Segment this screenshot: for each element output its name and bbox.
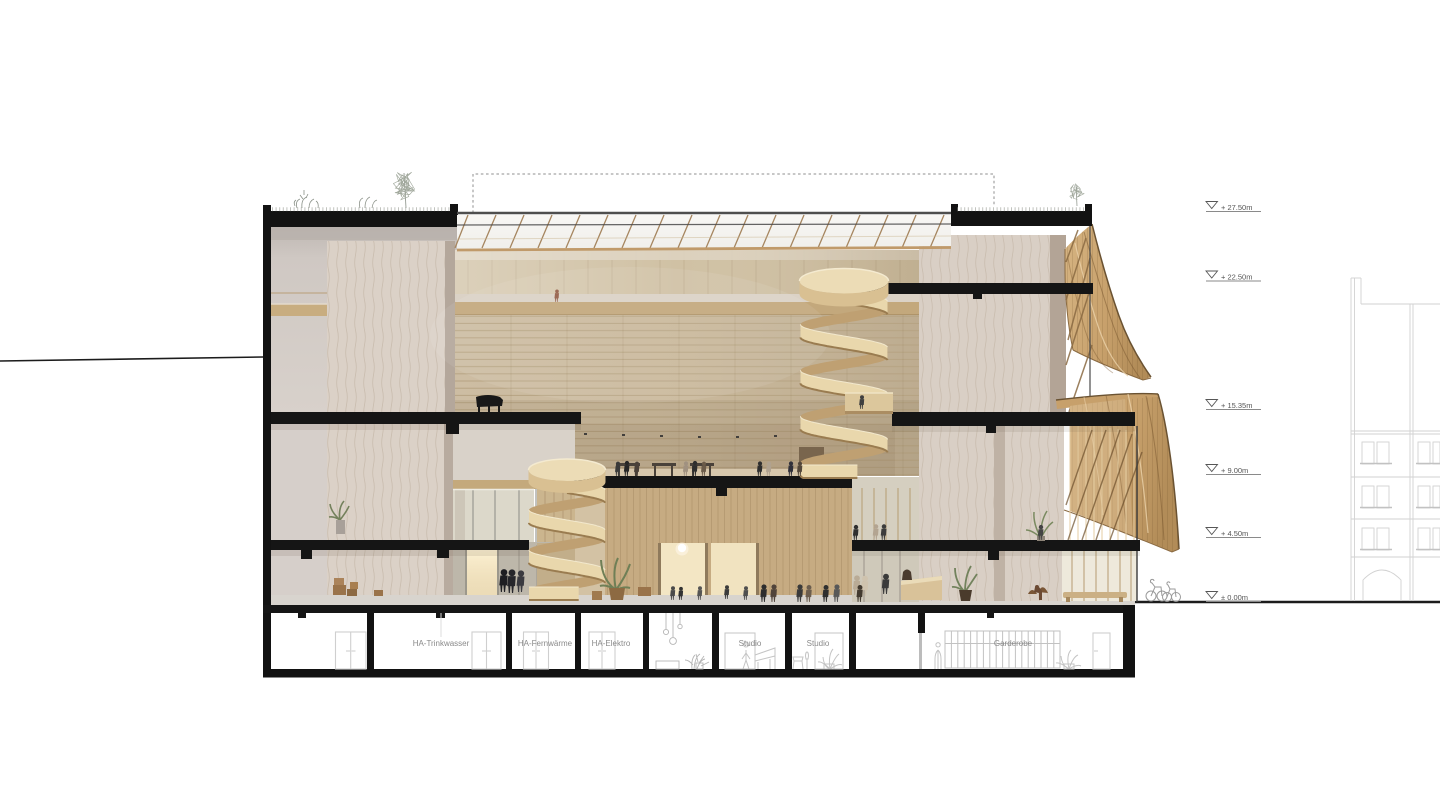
- svg-text:Studio: Studio: [807, 639, 830, 648]
- svg-text:Studio: Studio: [739, 639, 762, 648]
- svg-text:± 0.00m: ± 0.00m: [1221, 593, 1248, 602]
- svg-text:+ 9.00m: + 9.00m: [1221, 466, 1248, 475]
- svg-text:HA-Elektro: HA-Elektro: [592, 639, 631, 648]
- svg-text:HA-Trinkwasser: HA-Trinkwasser: [413, 639, 470, 648]
- svg-text:+ 27.50m: + 27.50m: [1221, 203, 1252, 212]
- svg-text:+ 4.50m: + 4.50m: [1221, 529, 1248, 538]
- svg-text:+ 22.50m: + 22.50m: [1221, 273, 1252, 282]
- svg-text:Garderobe: Garderobe: [994, 639, 1033, 648]
- svg-text:+ 15.35m: + 15.35m: [1221, 401, 1252, 410]
- svg-text:HA-Fernwärme: HA-Fernwärme: [518, 639, 573, 648]
